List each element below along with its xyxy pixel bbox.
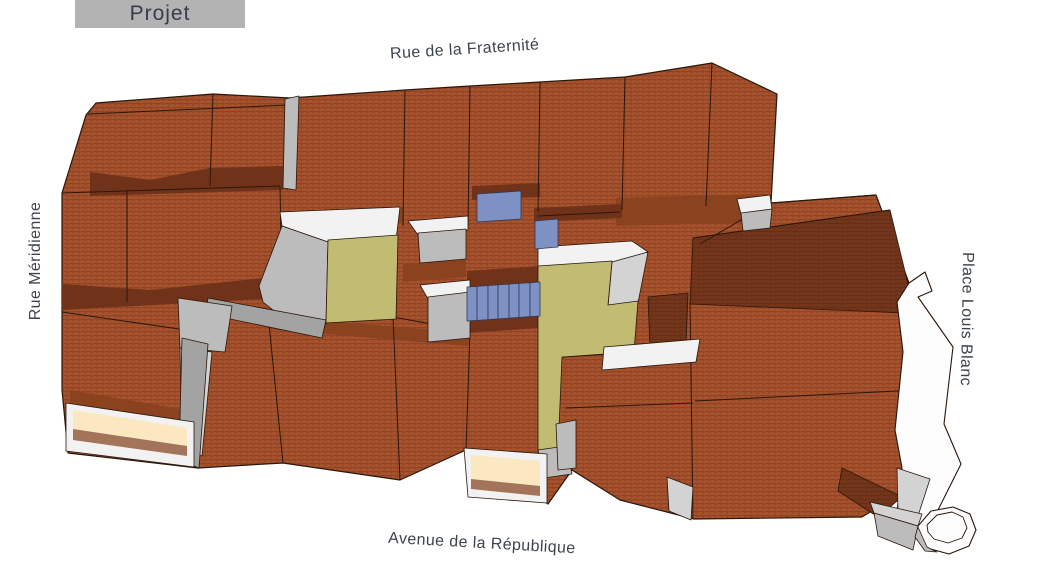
legend-projet-box: Projet [75, 0, 245, 28]
legend-projet-label: Projet [130, 2, 191, 26]
blue-roof-square [535, 219, 558, 249]
courtyard1-floor [326, 235, 398, 323]
illustration-stage: Projet Rue de la Fraternité Rue Méridien… [0, 0, 1041, 586]
skylight-slat-5 [509, 283, 519, 318]
street-label-meridienne: Rue Méridienne [27, 179, 45, 343]
skylight-slat-1 [467, 286, 477, 321]
skylight-slat-7 [530, 282, 540, 317]
blue-roof-rect [477, 191, 521, 222]
gray-band-topleft [283, 96, 299, 190]
dark-roof-fragment [648, 293, 688, 347]
skylight-slat-4 [498, 284, 509, 319]
block-model-svg [0, 0, 1041, 586]
dormer-lower-gray [428, 292, 470, 342]
gray-wall-center [556, 420, 576, 470]
skylight-slat-3 [488, 285, 498, 320]
dormer-upper-gray [418, 229, 466, 263]
street-label-louis-blanc: Place Louis Blanc [956, 237, 977, 401]
skylight-slat-2 [477, 286, 488, 321]
skylight-slat-6 [519, 283, 530, 318]
fold-bit-gray [741, 209, 772, 231]
